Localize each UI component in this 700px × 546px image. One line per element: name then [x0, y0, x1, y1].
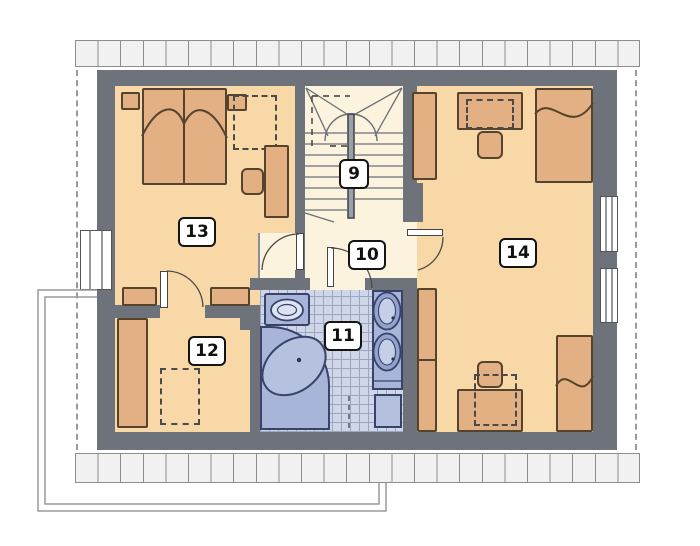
bed-14-top: [535, 88, 593, 183]
cabinet-14-divider: [418, 359, 436, 361]
room-label-9: 9: [339, 159, 369, 189]
toilet-base: [264, 293, 310, 326]
door-leaf-room14: [407, 229, 443, 236]
bath-wall-stub-right: [365, 278, 417, 290]
room-label-10: 10: [348, 240, 386, 270]
bench-left-13: [122, 287, 157, 306]
room-label-14-text: 14: [506, 243, 530, 263]
room-label-14: 14: [499, 238, 537, 268]
double-bed-divider: [183, 90, 185, 183]
bed-14-bottom: [556, 335, 593, 432]
roof-eave-strip-bottom: [75, 453, 640, 483]
bath-cabinet: [374, 394, 402, 428]
floor-plan: 9 10 11 12 13 14: [0, 0, 700, 546]
chair-14-top: [477, 131, 503, 159]
room-label-11: 11: [324, 321, 362, 351]
roof-edge-dashed-right: [635, 70, 637, 450]
vanity-counter: [372, 290, 403, 390]
nightstand-left: [121, 92, 140, 110]
room-label-9-text: 9: [348, 164, 360, 184]
door-leaf-room13: [296, 233, 304, 270]
room-label-12-text: 12: [195, 341, 219, 361]
room-9-stair-floor: [305, 86, 403, 222]
bench-right-13: [210, 287, 250, 306]
planned-furniture-dashed-12: [160, 368, 200, 425]
desk-13: [264, 145, 289, 218]
chimney-stub: [403, 183, 423, 222]
door-leaf-bath: [327, 247, 334, 287]
wardrobe-12: [117, 318, 148, 428]
room-label-11-text: 11: [331, 326, 355, 346]
room-label-13: 13: [178, 217, 216, 247]
room-label-12: 12: [188, 336, 226, 366]
door-leaf-room12: [160, 271, 168, 308]
chair-13: [241, 168, 264, 195]
hall-wall-stub: [295, 270, 305, 280]
room-label-10-text: 10: [355, 245, 379, 265]
wardrobe-14: [412, 92, 437, 180]
door-opening-14: [403, 230, 417, 273]
desk-14-bottom-dashed: [474, 374, 517, 426]
window-right-upper: [600, 196, 618, 252]
planned-furniture-dashed-13: [233, 95, 277, 150]
window-left: [80, 230, 112, 290]
room-label-13-text: 13: [185, 222, 209, 242]
door-opening-bath: [310, 278, 365, 290]
roof-eave-strip-top: [75, 40, 640, 67]
window-right-lower: [600, 268, 618, 323]
room12-wall-jog: [240, 318, 252, 330]
desk-14-top-dashed: [466, 99, 514, 129]
roof-edge-dashed-left: [76, 70, 78, 450]
